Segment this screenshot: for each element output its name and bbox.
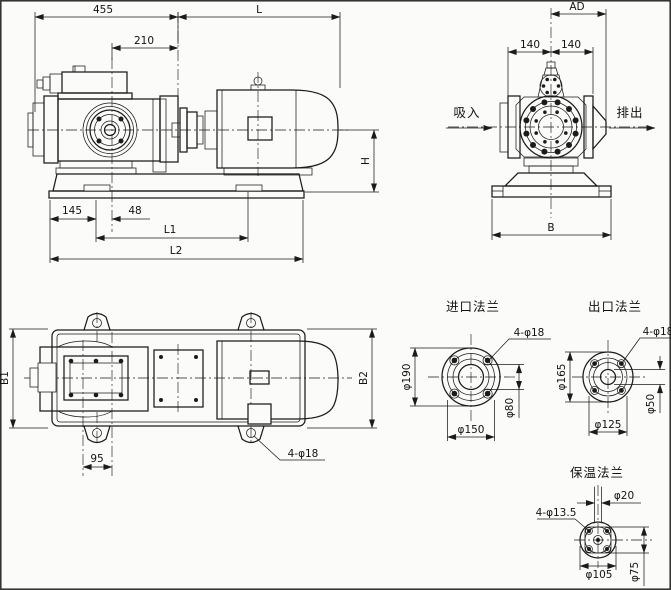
dim-insulation-pipe: φ20 [614, 490, 634, 502]
dim-H: H [360, 157, 372, 165]
discharge-label: 排出 [616, 105, 643, 120]
dim-outlet-bolt-circle: φ125 [595, 419, 622, 431]
dim-L1: L1 [164, 224, 177, 236]
dim-145: 145 [62, 205, 82, 217]
drawing-canvas: 455 L 210 H 145 48 L1 L2 [0, 0, 671, 590]
label-inlet-holes: 4-φ18 [514, 327, 545, 339]
dim-inlet-bore: φ80 [504, 398, 516, 418]
label-outlet-holes: 4-φ18 [643, 326, 671, 338]
dim-insulation-od: φ105 [586, 569, 613, 581]
dim-inlet-bolt-circle: φ150 [458, 424, 485, 436]
paper-background [0, 0, 671, 590]
flange-insulation-title: 保温法兰 [570, 465, 624, 480]
dim-95: 95 [90, 453, 103, 465]
dim-48: 48 [128, 205, 141, 217]
dim-insulation-bolt-circle: φ75 [629, 562, 641, 582]
dim-insulation-holes: 4-φ13.5 [536, 507, 577, 519]
dim-140-right: 140 [561, 39, 581, 51]
label-base-holes: 4-φ18 [288, 448, 319, 460]
dim-B1: B1 [0, 371, 11, 385]
dim-inlet-od: φ190 [401, 364, 413, 391]
dim-B2: B2 [358, 371, 370, 385]
flange-inlet-title: 进口法兰 [446, 299, 500, 314]
dim-455: 455 [93, 4, 113, 16]
dim-B: B [547, 222, 554, 234]
dim-210: 210 [134, 35, 154, 47]
motor-junction-box [248, 404, 271, 424]
flange-outlet-title: 出口法兰 [588, 299, 642, 314]
dim-L: L [256, 4, 262, 16]
dim-outlet-od: φ165 [556, 364, 568, 391]
pump-installation-drawing: 455 L 210 H 145 48 L1 L2 [0, 0, 671, 590]
dim-AD: AD [569, 1, 584, 13]
dim-outlet-bore: φ50 [645, 394, 657, 414]
dim-L2: L2 [170, 245, 183, 257]
dim-140-left: 140 [520, 39, 540, 51]
suction-label: 吸入 [453, 105, 480, 120]
